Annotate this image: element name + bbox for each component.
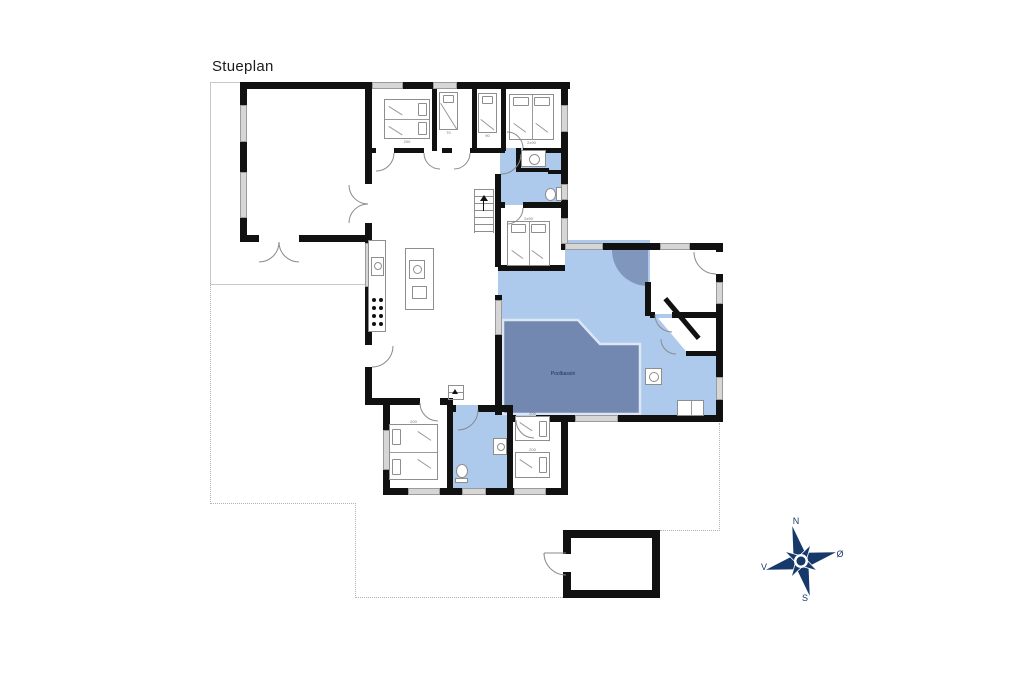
- door-swings: [0, 0, 1024, 682]
- compass-label-west: V: [761, 562, 767, 572]
- compass-label-south: S: [802, 593, 808, 603]
- compass-star: [757, 517, 844, 604]
- compass-rose: N Ø S V: [755, 510, 849, 606]
- floorplan-canvas: Stueplan Poolbassin: [0, 0, 1024, 682]
- compass-label-east: Ø: [836, 549, 843, 559]
- compass-label-north: N: [793, 516, 800, 526]
